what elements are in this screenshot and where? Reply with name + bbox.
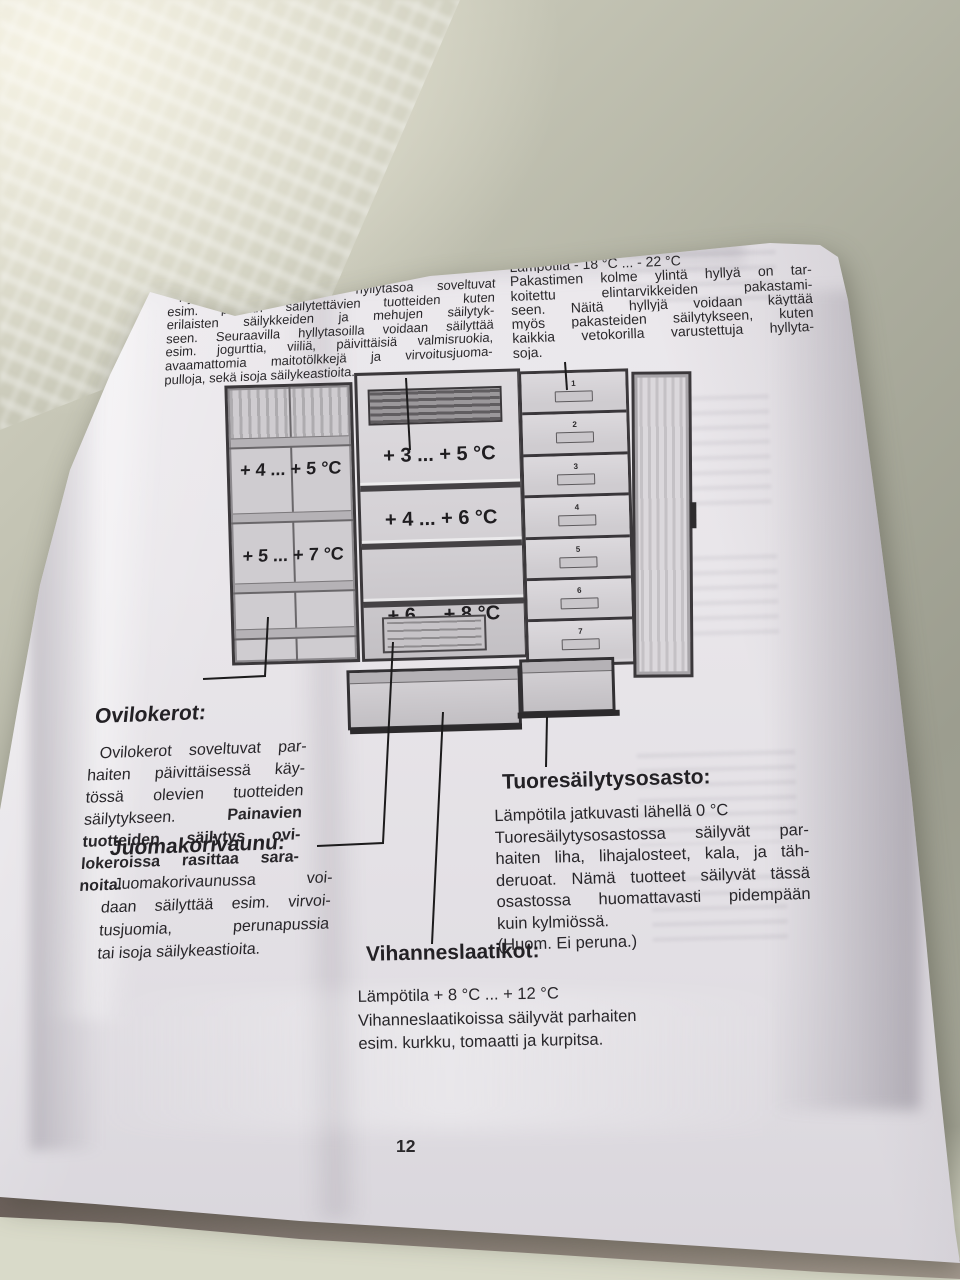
- freezer-drawer: 7: [528, 620, 633, 661]
- freezer-drawer: 3: [523, 454, 628, 498]
- drawer-handle: [556, 432, 594, 444]
- cart-slats: [387, 620, 482, 649]
- drawer-number: 3: [523, 454, 627, 472]
- drawer-lip: [349, 669, 517, 685]
- door-temp-label: + 4 ... + 5 °C: [229, 457, 352, 481]
- freezer-door-handle: [690, 502, 696, 528]
- door-temp-label: + 5 ... + 7 °C: [232, 543, 355, 567]
- freezer-drawer: 4: [525, 496, 630, 540]
- title-bar: Elintarvikkeiden säilytys: [190, 152, 773, 220]
- drawer-handle: [557, 473, 595, 485]
- crease-shadow: [770, 290, 920, 1110]
- page-title: Elintarvikkeiden säilytys: [204, 152, 773, 221]
- fridge-shelf: [360, 481, 520, 491]
- shelf-temp-label: + 4 ... + 6 °C: [361, 505, 522, 532]
- vihanneslaatikot-paragraph: Lämpötila + 8 °C ... + 12 °C Vihanneslaa…: [357, 980, 688, 1056]
- drawer-number: 7: [528, 620, 632, 638]
- drawer-lip: [522, 660, 611, 673]
- drawer-number: 2: [522, 413, 626, 431]
- juomakorivaunu-paragraph: Juomakorivaunussa voi- daan säilyttää es…: [97, 866, 334, 965]
- heading-vihanneslaatikot: Vihanneslaatikot:: [366, 939, 540, 967]
- heading-sijoitusesimerkki: SIJOITUSESIMERKKI: [178, 233, 370, 262]
- cooling-vent: [368, 386, 503, 426]
- heading-kylmio: Kylmiö:: [181, 262, 237, 282]
- fridge-door-open: + 4 ... + 5 °C + 5 ... + 7 °C: [224, 382, 360, 665]
- freezer-column: 1 2 3 4 5: [518, 368, 636, 667]
- paper-page: Elintarvikkeiden säilytys SIJOITUSESIMER…: [0, 0, 960, 1280]
- fridge-shelf: [362, 539, 522, 549]
- pakastin-paragraph: Lämpötila - 18 °C ... - 22 °C Pakastimen…: [509, 248, 815, 360]
- heading-pakastin: Pakastin:: [516, 230, 583, 250]
- freezer-door-open: [631, 371, 693, 677]
- freezer-drawer: 2: [522, 413, 627, 457]
- paper-page-wrapper: Elintarvikkeiden säilytys SIJOITUSESIMER…: [0, 0, 960, 1280]
- drawer-number: 6: [527, 578, 631, 596]
- paragraph-text-bold: Painavien: [227, 802, 303, 827]
- heading-ovilokerot: Ovilokerot:: [94, 701, 207, 729]
- shelf-temp-label: + 3 ... + 5 °C: [359, 441, 520, 468]
- beverage-cart: [382, 614, 487, 653]
- paragraph-line: esim. kurkku, tomaatti ja kurpitsa.: [358, 1027, 688, 1056]
- drawer-number: 4: [525, 496, 629, 514]
- freezer-drawer: 6: [527, 578, 632, 622]
- drawer-number: 5: [526, 537, 630, 555]
- drawer-number: 1: [521, 371, 625, 389]
- drawer-handle: [560, 597, 598, 609]
- fridge-cabinet: + 3 ... + 5 °C + 4 ... + 6 °C + 6 ... + …: [354, 368, 528, 662]
- freezer-drawer: 5: [526, 537, 631, 581]
- drawer-handle: [558, 515, 596, 527]
- vegetable-drawer: [346, 666, 522, 731]
- drawer-handle: [555, 390, 593, 402]
- page-number: 12: [396, 1136, 415, 1157]
- refrigerator-diagram: + 4 ... + 5 °C + 5 ... + 7 °C + 3 ... + …: [212, 359, 700, 744]
- photo-background: Elintarvikkeiden säilytys SIJOITUSESIMER…: [0, 0, 960, 1280]
- tuoresailytysosasto-paragraph: Lämpötila jatkuvasti lähellä 0 °C Tuores…: [494, 798, 812, 957]
- drawer-handle: [562, 639, 600, 651]
- crease-shadow: [30, 330, 100, 1150]
- fresh-compartment-drawer: [519, 657, 615, 715]
- freezer-drawer: 1: [521, 371, 626, 415]
- drawer-handle: [559, 556, 597, 568]
